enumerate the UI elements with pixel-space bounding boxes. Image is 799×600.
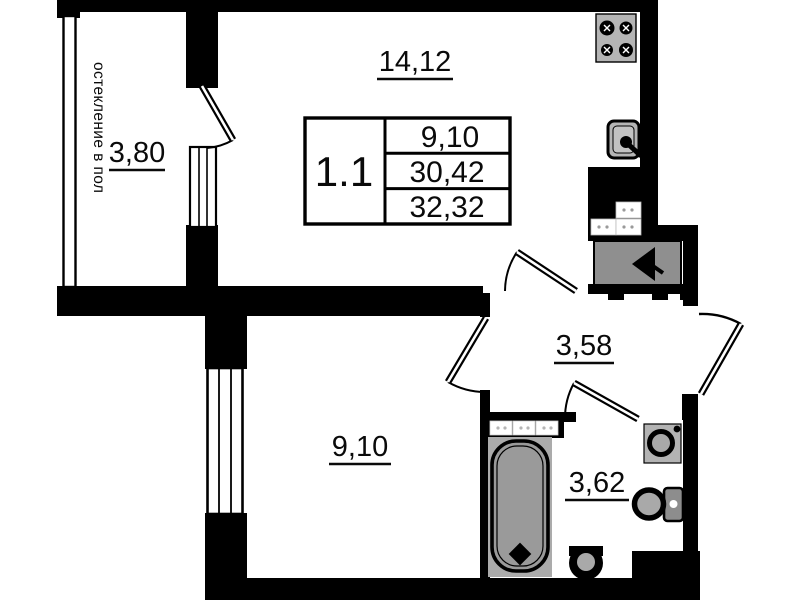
vent-shaft-icon bbox=[588, 241, 694, 300]
balcony-door bbox=[202, 86, 233, 148]
kitchen-living-label: 14,12 bbox=[377, 46, 453, 79]
door-leaf-inner bbox=[202, 86, 233, 140]
stove-icon bbox=[596, 14, 636, 62]
svg-text:3,80: 3,80 bbox=[109, 137, 165, 169]
wall bbox=[57, 286, 483, 316]
door-leaf-inner bbox=[701, 324, 741, 394]
bathtub-icon bbox=[488, 421, 558, 577]
wall bbox=[245, 578, 700, 600]
door-leaf-inner bbox=[574, 383, 638, 419]
wall bbox=[186, 0, 218, 88]
room-door bbox=[448, 318, 486, 392]
walls bbox=[57, 0, 700, 600]
unit-info-table: 1.1 9,10 30,42 32,32 bbox=[305, 118, 510, 224]
balcony-door-window bbox=[190, 147, 216, 227]
door-leaf-inner bbox=[448, 318, 486, 382]
floor-plan: 1.1 9,10 30,42 32,32 14,12 3,80 остеклен… bbox=[0, 0, 799, 600]
wall bbox=[480, 293, 490, 317]
balcony-note: остекление в пол bbox=[90, 62, 107, 193]
kitchen-sink-icon bbox=[608, 121, 641, 158]
svg-text:3,62: 3,62 bbox=[569, 467, 625, 499]
unit-number: 1.1 bbox=[315, 148, 373, 195]
wall bbox=[205, 295, 247, 369]
corner-sink-icon bbox=[644, 424, 681, 463]
svg-text:остекление в пол: остекление в пол bbox=[90, 62, 107, 193]
svg-text:14,12: 14,12 bbox=[379, 46, 452, 78]
wall bbox=[683, 420, 698, 555]
bathroom-label: 3,62 bbox=[565, 467, 629, 500]
toilet-icon bbox=[635, 488, 684, 521]
door-leaf-inner bbox=[517, 252, 576, 291]
entrance-door bbox=[699, 314, 741, 394]
wall bbox=[632, 551, 700, 600]
wall bbox=[682, 394, 698, 420]
svg-text:9,10: 9,10 bbox=[332, 431, 388, 463]
wall bbox=[640, 0, 658, 170]
wall bbox=[57, 0, 658, 12]
door-arc bbox=[699, 314, 741, 324]
unit-area: 30,42 bbox=[409, 156, 484, 189]
kitchen-door bbox=[505, 252, 576, 291]
hall-label: 3,58 bbox=[554, 330, 614, 363]
door-arc bbox=[207, 140, 233, 148]
wall bbox=[205, 513, 247, 600]
washbasin-icon bbox=[569, 546, 603, 580]
room-window bbox=[208, 368, 243, 514]
wall bbox=[480, 390, 490, 418]
wall bbox=[186, 225, 218, 291]
svg-text:3,58: 3,58 bbox=[556, 330, 612, 362]
room-label: 9,10 bbox=[329, 431, 391, 464]
balcony-label: 3,80 bbox=[109, 137, 165, 170]
floor-plan-svg: 1.1 9,10 30,42 32,32 14,12 3,80 остеклен… bbox=[0, 0, 799, 600]
balcony-glazing-window bbox=[64, 16, 76, 287]
unit-total-area: 32,32 bbox=[409, 191, 484, 224]
door-arc bbox=[505, 252, 517, 291]
unit-living-area: 9,10 bbox=[421, 121, 479, 154]
